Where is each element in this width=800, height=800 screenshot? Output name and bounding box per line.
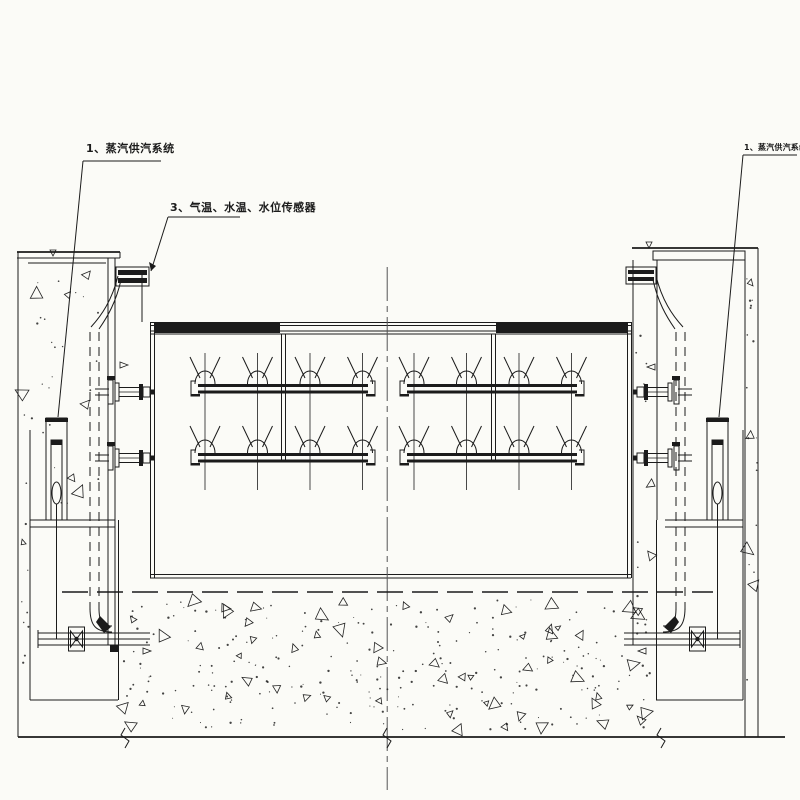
engineering-drawing-canvas: 1、蒸汽供汽系统 3、气温、水温、水位传感器 1、蒸汽供汽系统	[0, 0, 800, 800]
flange-joint-right-lower	[633, 442, 692, 470]
bottom-pipe-right	[624, 608, 740, 654]
gate-leaf	[150, 322, 632, 578]
flange-joint-left-upper	[95, 376, 154, 404]
valve-left	[69, 627, 85, 651]
steam-manifold	[150, 323, 631, 335]
label-sensors: 3、气温、水温、水位传感器	[149, 200, 317, 271]
flange-joint-right-upper	[633, 376, 692, 404]
right-pier	[624, 242, 758, 737]
steam-supply-unit-left	[45, 418, 68, 639]
annotations: 1、蒸汽供汽系统 3、气温、水温、水位传感器 1、蒸汽供汽系统	[58, 141, 800, 417]
spray-pipe-row-1	[190, 357, 587, 397]
label-steam-supply-left-text: 1、蒸汽供汽系统	[86, 141, 175, 155]
leader-arrowhead	[149, 262, 156, 271]
label-steam-supply-right-text: 1、蒸汽供汽系统	[744, 142, 800, 152]
flange-joint-left-lower	[95, 442, 154, 470]
steam-supply-unit-right	[706, 418, 729, 639]
valve-right	[690, 627, 706, 651]
datum-lines	[18, 267, 785, 790]
spray-pipe-row-2	[190, 426, 587, 466]
label-sensors-text: 3、气温、水温、水位传感器	[170, 200, 317, 214]
sensor-junction-box-right	[626, 267, 656, 284]
nozzle-hanger-rods	[205, 353, 572, 490]
bottom-pipe-left	[38, 608, 151, 654]
sensor-junction-box-left	[116, 267, 149, 286]
label-steam-supply-right: 1、蒸汽供汽系统	[719, 142, 800, 417]
gate-steam-heating-section: 1、蒸汽供汽系统 3、气温、水温、水位传感器 1、蒸汽供汽系统	[0, 0, 800, 800]
